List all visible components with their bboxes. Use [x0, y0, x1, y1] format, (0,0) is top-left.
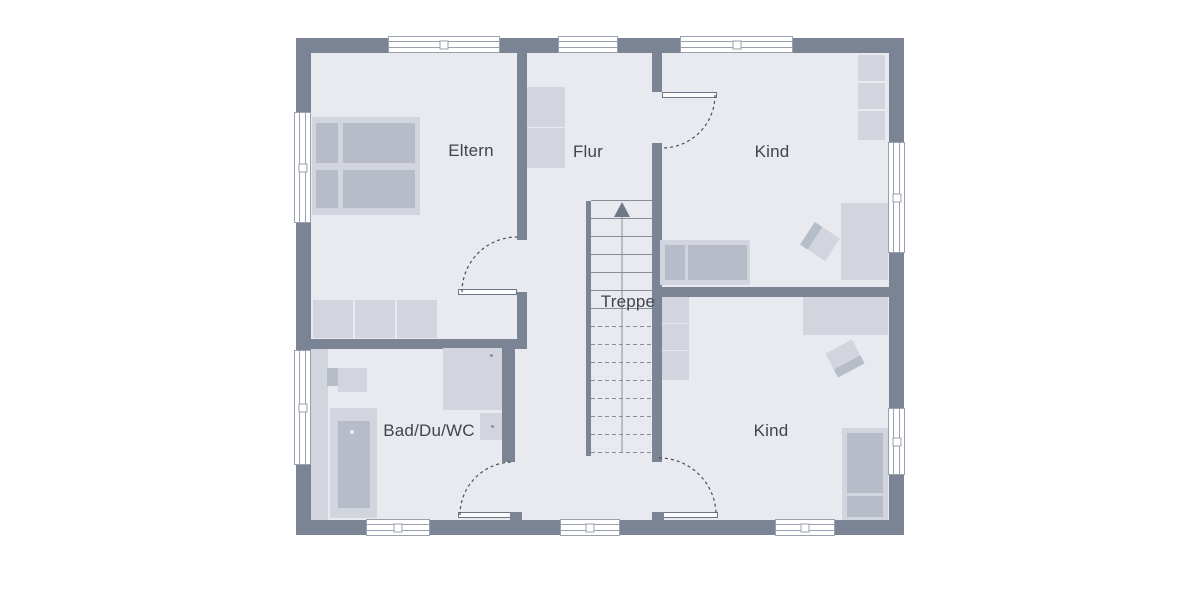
- door-arc-kind-bottom: [659, 458, 716, 515]
- door-arc-kind-top: [662, 95, 715, 148]
- floorplan-canvas: { "floorplan": { "type": "residential-up…: [0, 0, 1200, 600]
- room-label-flur: Flur: [573, 142, 603, 162]
- door-arc-bad: [460, 462, 513, 515]
- room-label-kind-bottom: Kind: [754, 421, 789, 441]
- door-arc-eltern: [462, 237, 517, 292]
- room-label-bad: Bad/Du/WC: [383, 421, 475, 441]
- stair-up-arrow-icon: [614, 202, 630, 217]
- room-label-treppe: Treppe: [601, 292, 655, 312]
- room-label-eltern: Eltern: [448, 141, 494, 161]
- room-label-kind-top: Kind: [755, 142, 790, 162]
